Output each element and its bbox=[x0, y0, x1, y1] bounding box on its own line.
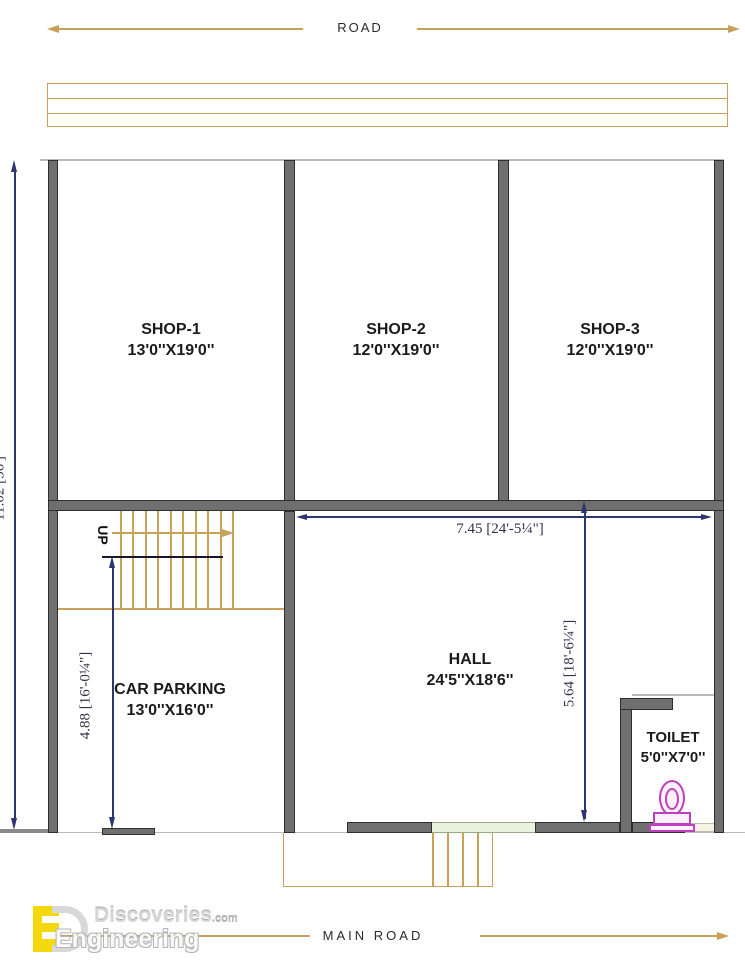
room-shop1-name: SHOP-1 bbox=[85, 320, 257, 341]
room-toilet-name: TOILET bbox=[628, 728, 718, 748]
watermark-brand-bottom: Engineering bbox=[55, 925, 199, 954]
toilet-bowl-rim-icon bbox=[665, 788, 679, 810]
stair-landing-line bbox=[58, 608, 284, 610]
room-shop1-size: 13'0''X19'0'' bbox=[85, 341, 257, 362]
dim-hall-width-arrow-right-icon bbox=[701, 514, 712, 520]
toilet-base-icon bbox=[649, 824, 695, 832]
dim-parking-depth-line bbox=[112, 566, 114, 818]
room-shop3-name: SHOP-3 bbox=[524, 320, 696, 341]
main-road-line-right bbox=[480, 935, 718, 937]
main-road-arrow-right-icon bbox=[717, 932, 729, 940]
stair-up-label: UP bbox=[95, 520, 111, 550]
boundary-stub-left bbox=[0, 829, 48, 833]
front-setback-hatch bbox=[47, 83, 728, 127]
wall-toilet-top bbox=[620, 698, 673, 710]
room-toilet-size: 5'0''X7'0'' bbox=[628, 748, 718, 768]
dim-plot-depth-label: 11.02 [36'] bbox=[0, 419, 9, 559]
room-hall: HALL 24'5''X18'6'' bbox=[384, 650, 556, 692]
dim-parking-depth-arrow-down-icon bbox=[109, 817, 115, 829]
room-parking-size: 13'0''X16'0'' bbox=[84, 701, 256, 722]
stair-direction-line bbox=[112, 532, 222, 534]
wall-parking-hall bbox=[284, 511, 295, 833]
hall-entrance-opening bbox=[432, 822, 535, 833]
stair-break-line bbox=[102, 556, 223, 558]
dim-hall-depth-arrow-down-icon bbox=[581, 810, 587, 822]
room-shop1: SHOP-1 13'0''X19'0'' bbox=[85, 320, 257, 362]
toilet-lintel-line bbox=[632, 694, 714, 696]
road-arrow-left-icon bbox=[47, 25, 59, 33]
parking-gate-stub bbox=[102, 828, 155, 835]
room-parking-name: CAR PARKING bbox=[84, 680, 256, 701]
wall-hall-front-left bbox=[347, 822, 432, 833]
room-shop2-size: 12'0''X19'0'' bbox=[310, 341, 482, 362]
road-line-left bbox=[58, 28, 303, 30]
dim-plot-depth-arrow-down-icon bbox=[11, 818, 17, 830]
wall-shop1-shop2 bbox=[284, 160, 295, 501]
floor-plan: ROAD UP SHOP-1 bbox=[0, 0, 745, 960]
dim-hall-width-line bbox=[300, 516, 708, 518]
dim-plot-depth-line bbox=[14, 170, 16, 818]
room-parking: CAR PARKING 13'0''X16'0'' bbox=[84, 680, 256, 722]
room-hall-size: 24'5''X18'6'' bbox=[384, 671, 556, 692]
room-shop2: SHOP-2 12'0''X19'0'' bbox=[310, 320, 482, 362]
main-road-label: MAIN ROAD bbox=[313, 928, 433, 943]
stair-direction-arrow-icon bbox=[222, 529, 234, 537]
watermark-discoveries: Discoveries bbox=[94, 904, 212, 927]
dim-parking-depth-label: 4.88 [16'-0¼"] bbox=[78, 616, 95, 776]
storefront-line bbox=[40, 159, 724, 161]
wall-shop2-shop3 bbox=[498, 160, 509, 501]
room-shop2-name: SHOP-2 bbox=[310, 320, 482, 341]
wall-shops-rear bbox=[48, 500, 724, 511]
dim-hall-depth-line bbox=[584, 511, 586, 819]
room-shop3: SHOP-3 12'0''X19'0'' bbox=[524, 320, 696, 362]
wall-left bbox=[48, 160, 58, 833]
room-hall-name: HALL bbox=[384, 650, 556, 671]
road-arrow-right-icon bbox=[728, 25, 740, 33]
room-toilet: TOILET 5'0''X7'0'' bbox=[628, 728, 718, 767]
road-label: ROAD bbox=[320, 20, 400, 35]
watermark-com: .com bbox=[212, 913, 238, 925]
room-shop3-size: 12'0''X19'0'' bbox=[524, 341, 696, 362]
wall-hall-front-right bbox=[535, 822, 620, 833]
dim-hall-width-label: 7.45 [24'-5¼"] bbox=[420, 521, 580, 538]
dim-hall-depth-label: 5.64 [18'-6¼"] bbox=[562, 584, 579, 744]
watermark-logo: Discoveries.com Engineering bbox=[28, 898, 248, 958]
road-line-right bbox=[417, 28, 729, 30]
